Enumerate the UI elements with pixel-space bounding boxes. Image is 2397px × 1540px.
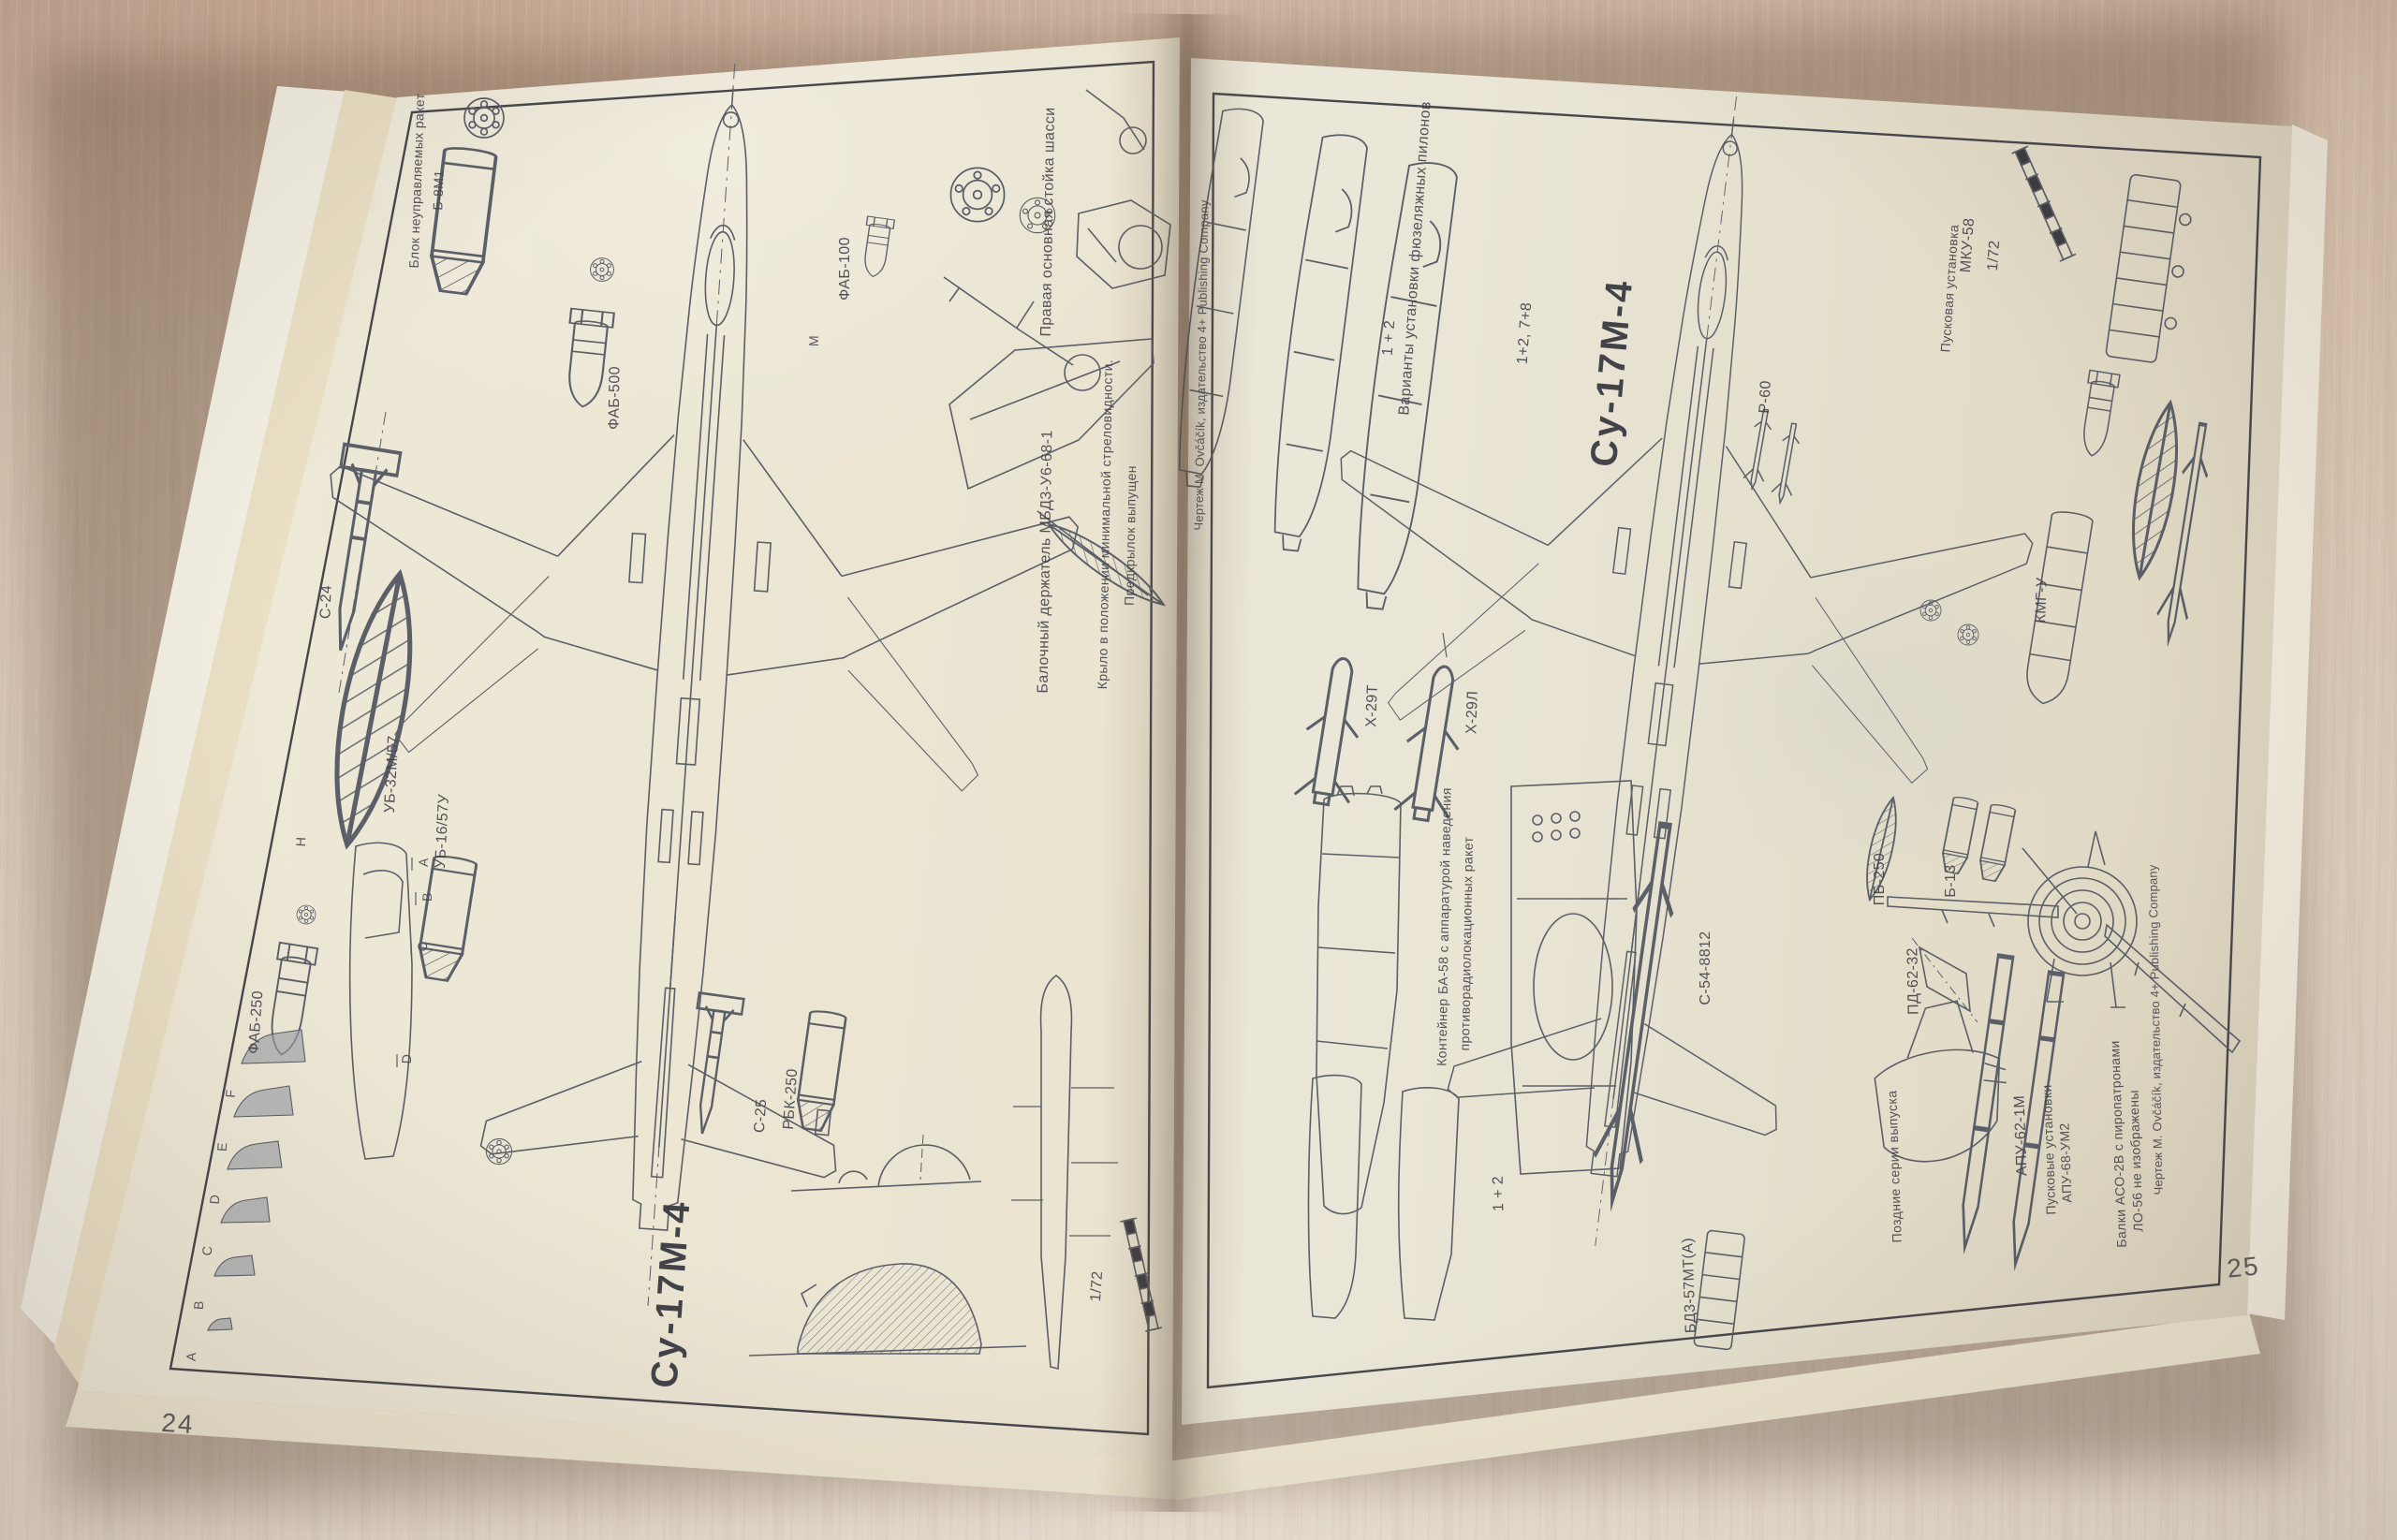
fin-front-strip — [1011, 975, 1118, 1369]
label-r60: Р-60 — [1757, 380, 1775, 414]
canopy-dome-hatched — [749, 1264, 1026, 1356]
fab100-bomb-drawing — [860, 216, 894, 278]
label-v12: 1 + 2 — [1380, 319, 1400, 356]
label-b13: Б-13 — [1943, 864, 1960, 897]
label-pb250: ПБ-250 — [1872, 853, 1889, 905]
scale-bar-right — [2012, 146, 2077, 261]
b13-pod-drawing — [1939, 796, 1978, 874]
label-s24: С-24 — [317, 585, 335, 620]
cut-d: D — [399, 1053, 415, 1063]
label-kh29t: Х-29Т — [1363, 684, 1382, 727]
label-scale-right: 1/72 — [1985, 240, 2004, 271]
sec-b: B — [191, 1300, 207, 1311]
rbk250-drawing — [794, 1010, 846, 1132]
b13-pod-drawing — [1977, 803, 2015, 882]
label-b8-block-2: Б-8М1 — [430, 169, 446, 211]
pod-front-view — [297, 905, 316, 924]
marker-h: H — [293, 836, 309, 846]
sec-c: C — [199, 1245, 215, 1256]
right-page-number: 25 — [2226, 1251, 2261, 1283]
label-bd3: БД3-57МТ(А) — [1680, 1238, 1700, 1334]
left-page-number: 24 — [160, 1408, 195, 1440]
label-scale-left: 1/72 — [1088, 1270, 1107, 1302]
label-pd6232: ПД-62-32 — [1904, 947, 1922, 1015]
pod-front-view — [591, 258, 614, 282]
s54-missile-drawing — [1589, 822, 1688, 1204]
cut-c: C — [415, 941, 431, 951]
label-kh29l: Х-29Л — [1463, 691, 1482, 735]
pod-front-view — [1958, 624, 1978, 645]
label-apu68: АПУ-68-УМ2 — [2057, 1122, 2075, 1203]
fuselage-cross-sections — [208, 1030, 305, 1330]
cut-a: A — [416, 858, 431, 868]
kh29l-missile-drawing — [1393, 633, 1472, 824]
bd3-rack-drawing — [1694, 1230, 1745, 1350]
scale-bar-left — [1120, 1218, 1162, 1331]
label-s54: С-54-8812 — [1698, 931, 1714, 1005]
sec-e: E — [214, 1142, 230, 1152]
sec-f: F — [223, 1089, 239, 1098]
sec-d: D — [207, 1194, 223, 1205]
mbd-rack-ladder — [2106, 174, 2197, 365]
label-v12b: 1 + 2 — [1491, 1176, 1508, 1211]
kh29t-missile-drawing — [1294, 654, 1372, 808]
sec-a: A — [184, 1352, 199, 1362]
cut-b: B — [419, 892, 434, 902]
aircraft-front-view — [1888, 831, 2240, 1052]
photo-of-open-book: Блок неуправляемых ракет Б-8М1 С-24 УБ-3… — [0, 0, 2397, 1540]
r60-missile-drawing — [1770, 422, 1803, 505]
label-kmgu: КМГ-У — [2033, 577, 2051, 623]
ub16-pod-drawing — [416, 855, 478, 983]
label-wing-2: Предкрылок выпущен — [1122, 465, 1140, 606]
label-s25: С-25 — [752, 1098, 771, 1133]
nose-side-profile — [350, 843, 416, 1159]
right-page-frame — [1208, 94, 2260, 1387]
apu-rail-drawing — [1957, 956, 2012, 1249]
label-apu62: АПУ-62-1М — [2011, 1094, 2031, 1176]
bomb-drawing — [2077, 370, 2120, 458]
label-fab100: ФАБ-100 — [837, 237, 854, 301]
underside-tail-strips — [1309, 1076, 1460, 1320]
label-fab500: ФАБ-500 — [606, 366, 624, 430]
marker-m: M — [806, 335, 821, 346]
